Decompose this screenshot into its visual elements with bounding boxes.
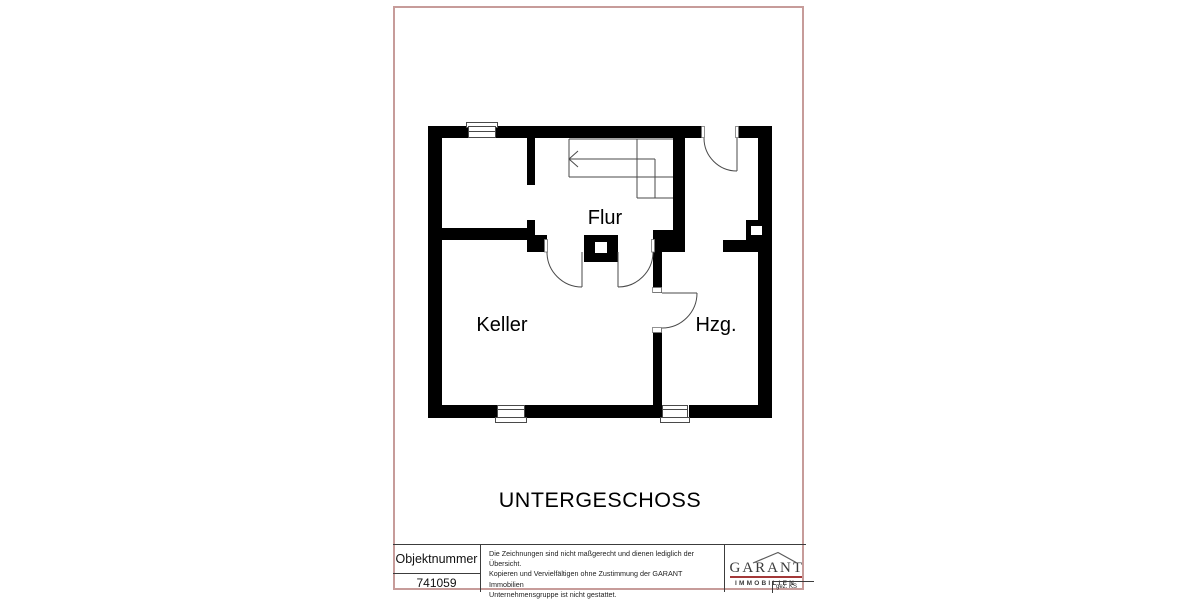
room-label-flur: Flur (588, 207, 623, 229)
logo-cell: GARANT IMMOBILIEN (725, 545, 806, 592)
door-keller-right (618, 240, 655, 288)
drawing-sheet-page: Flur Keller Hzg. UNTERGESCHOSS Objektnum… (0, 0, 1200, 600)
chimney-center (584, 235, 618, 262)
objektnummer-cell: Objektnummer 741059 (393, 545, 481, 592)
objektnummer-label: Objektnummer (393, 545, 480, 574)
disclaimer-line-1: Die Zeichnungen sind nicht maßgerecht un… (489, 549, 718, 569)
room-label-heating: Hzg. (695, 314, 736, 336)
room-label-keller: Keller (476, 314, 527, 336)
plan-title: UNTERGESCHOSS (499, 488, 701, 512)
house-roof-icon (752, 551, 798, 564)
logo-underline (730, 576, 802, 578)
window-top-left (467, 123, 498, 138)
floor-plan-svg: Flur Keller Hzg. UNTERGESCHOSS (0, 0, 1200, 600)
disclaimer-cell: Die Zeichnungen sind nicht maßgerecht un… (481, 545, 725, 592)
garant-logo: GARANT IMMOBILIEN (730, 551, 802, 587)
window-bottom-right (661, 406, 690, 423)
window-bottom-left (496, 406, 527, 423)
disclaimer-line-2: Kopieren und Vervielfältigen ohne Zustim… (489, 569, 718, 589)
door-entrance-top (702, 127, 739, 172)
objektnummer-value: 741059 (393, 574, 480, 592)
logo-subtitle: IMMOBILIEN (730, 580, 802, 587)
staircase (569, 139, 673, 198)
walls (428, 126, 772, 418)
title-block: Objektnummer 741059 Die Zeichnungen sind… (393, 544, 806, 592)
disclaimer-line-3: Unternehmensgruppe ist nicht gestattet. (489, 590, 718, 600)
door-heating (653, 288, 698, 333)
door-keller-left (545, 240, 583, 288)
